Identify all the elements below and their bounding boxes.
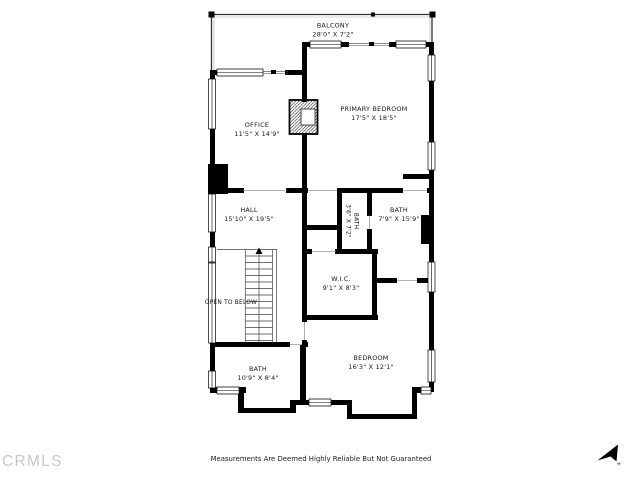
room-label-bedroom: BEDROOM	[353, 354, 388, 362]
room-dims-bath-lower: 10'9" X 8'4"	[237, 374, 278, 382]
north-arrow-icon: N	[598, 445, 622, 467]
stairs	[217, 248, 277, 344]
room-label-open-to-below: OPEN TO BELOW	[205, 300, 257, 306]
room-dims-office: 11'5" X 14'9"	[234, 130, 279, 138]
room-label-bath-small: BATH	[353, 213, 359, 229]
floorplan-page: BALCONY 28'0" X 7'2" OFFICE 11'5" X 14'9…	[0, 0, 640, 480]
room-dims-bedroom: 16'3" X 12'1"	[348, 363, 393, 371]
fireplace-icon	[290, 100, 318, 134]
room-dims-primary-bedroom: 17'5" X 18'5"	[351, 114, 396, 122]
room-dims-bath-primary: 7'9" X 15'9"	[378, 215, 419, 223]
crmls-watermark: CRMLS	[2, 453, 63, 470]
room-label-bath-lower: BATH	[249, 365, 267, 373]
room-label-primary-bedroom: PRIMARY BEDROOM	[340, 105, 407, 113]
room-dims-bath-small: 3'6" X 7'2"	[345, 204, 351, 238]
room-label-balcony: BALCONY	[317, 22, 349, 30]
room-dims-wic: 9'1" X 8'3"	[323, 284, 360, 292]
room-dims-hall: 15'10" X 19'5"	[224, 215, 274, 223]
stair-direction-arrow	[256, 248, 263, 255]
disclaimer-text: Measurements Are Deemed Highly Reliable …	[211, 455, 432, 463]
room-label-wic: W.I.C.	[331, 275, 351, 283]
room-label-hall: HALL	[240, 206, 257, 214]
windows	[209, 41, 436, 406]
north-arrow-label: N	[616, 461, 622, 467]
room-label-office: OFFICE	[245, 121, 269, 129]
walls	[208, 42, 434, 419]
floor-plan: BALCONY 28'0" X 7'2" OFFICE 11'5" X 14'9…	[0, 0, 640, 480]
room-label-bath-primary: BATH	[390, 206, 408, 214]
room-dims-balcony: 28'0" X 7'2"	[312, 31, 353, 39]
